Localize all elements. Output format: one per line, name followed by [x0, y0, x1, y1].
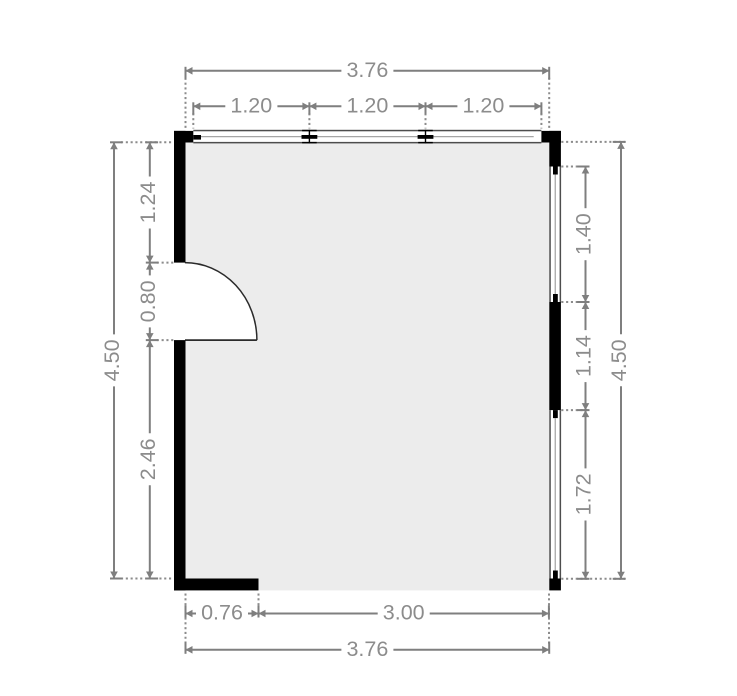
- svg-text:1.20: 1.20: [230, 93, 272, 117]
- svg-text:1.20: 1.20: [462, 93, 504, 117]
- svg-text:4.50: 4.50: [100, 339, 124, 381]
- svg-text:4.50: 4.50: [607, 339, 631, 381]
- svg-text:1.72: 1.72: [572, 473, 596, 515]
- svg-text:0.80: 0.80: [136, 280, 160, 322]
- svg-text:1.20: 1.20: [346, 93, 388, 117]
- svg-text:3.76: 3.76: [346, 58, 388, 82]
- svg-text:2.46: 2.46: [136, 438, 160, 480]
- svg-text:0.76: 0.76: [201, 601, 243, 625]
- svg-text:1.24: 1.24: [136, 182, 160, 224]
- svg-text:3.00: 3.00: [383, 601, 425, 625]
- svg-text:1.14: 1.14: [572, 335, 596, 377]
- svg-text:1.40: 1.40: [572, 213, 596, 255]
- svg-text:3.76: 3.76: [346, 637, 388, 661]
